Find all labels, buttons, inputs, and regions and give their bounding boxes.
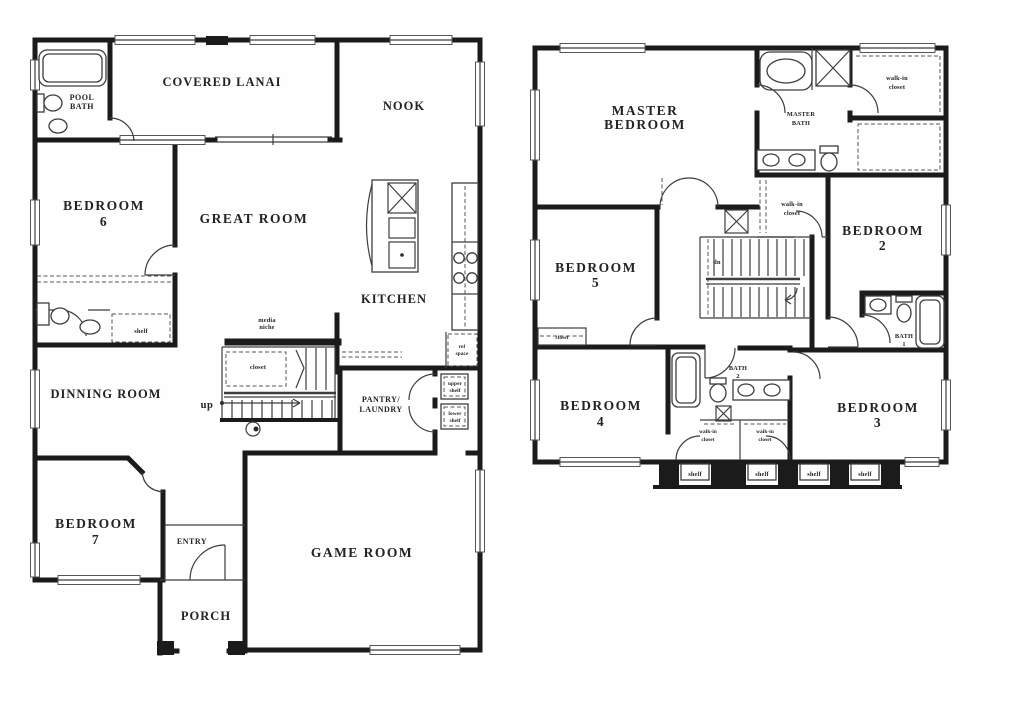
label-upper-shelf-2: shelf	[449, 388, 460, 394]
label-game-room: GAME ROOM	[311, 545, 413, 560]
label-pool-bath-2: BATH	[70, 102, 94, 111]
door-arc	[409, 374, 435, 400]
label-bedroom-4-number: 4	[597, 414, 605, 429]
sink-icon	[764, 384, 780, 396]
label-bedroom-3-number: 3	[874, 415, 882, 430]
porch-post-left	[157, 641, 174, 655]
label-master-bedroom-2: BEDROOM	[604, 117, 686, 132]
sink-icon	[763, 154, 779, 166]
label-lower-shelf: lower	[448, 411, 462, 417]
label-bath-shelf: shelf	[134, 328, 148, 335]
label-ref: ref	[459, 344, 466, 350]
label-bedroom-4: BEDROOM	[560, 398, 642, 413]
f1-walls	[35, 36, 480, 655]
label-walkin-right: walk-in	[756, 429, 774, 435]
door-arc	[793, 352, 820, 379]
label-walkin-top-2: closet	[889, 84, 906, 91]
f2-master-suite	[660, 48, 940, 207]
door-arc	[630, 318, 657, 345]
label-shelf-1: shelf	[688, 471, 702, 478]
label-walkin-right-2: closet	[758, 437, 771, 443]
label-bedroom-2: BEDROOM	[842, 223, 924, 238]
label-entry: ENTRY	[177, 537, 207, 546]
label-master-bath: MASTER	[787, 111, 815, 118]
door-arc	[862, 315, 890, 343]
door-arc	[828, 317, 858, 347]
label-bath-1: BATH	[895, 333, 913, 340]
label-stair-closet: closet	[250, 364, 267, 371]
label-bath-1-number: 1	[902, 341, 905, 348]
toilet-icon	[710, 384, 726, 402]
label-bath-2-number: 2	[736, 373, 739, 380]
f1-labels: POOL BATH COVERED LANAI NOOK BEDROOM 6 G…	[51, 75, 469, 623]
cooktop-burner	[454, 253, 464, 263]
label-bedroom-2-number: 2	[879, 238, 887, 253]
toilet-icon	[821, 153, 837, 171]
label-covered-lanai: COVERED LANAI	[163, 75, 282, 89]
label-upper-shelf: upper	[448, 381, 463, 387]
label-ref-2: space	[456, 351, 469, 357]
label-bedroom-7-number: 7	[92, 532, 100, 547]
sink-icon	[49, 119, 67, 133]
second-floor-plan: MASTER BEDROOM MASTER BATH walk-in close…	[531, 44, 951, 488]
toilet-icon	[44, 95, 62, 111]
floorplan-canvas: POOL BATH COVERED LANAI NOOK BEDROOM 6 G…	[0, 0, 1024, 720]
door-arc	[190, 545, 225, 580]
label-dining-room: DINNING ROOM	[51, 387, 162, 401]
label-dn: dn	[713, 259, 721, 266]
label-pantry: PANTRY/	[362, 395, 400, 404]
storage-closet	[858, 124, 940, 170]
label-bedroom-6: BEDROOM	[63, 198, 145, 213]
f1-stairs	[220, 347, 336, 436]
ref-space-niche	[448, 334, 477, 366]
label-shelf-3: shelf	[807, 471, 821, 478]
door-arc	[409, 406, 435, 432]
sink-icon	[789, 154, 805, 166]
label-walkin-mid-2: closet	[784, 210, 801, 217]
label-bath-2: BATH	[729, 365, 747, 372]
kitchen-island	[372, 180, 418, 272]
label-master-bath-2: BATH	[792, 120, 810, 127]
f1-entry-porch	[142, 472, 245, 580]
floorplan-image: POOL BATH COVERED LANAI NOOK BEDROOM 6 G…	[0, 0, 1024, 720]
sink-icon	[870, 299, 886, 311]
sink-icon	[80, 320, 100, 334]
label-shelf-2: shelf	[755, 471, 769, 478]
door-arc	[142, 472, 163, 492]
label-bedroom-5-number: 5	[592, 275, 600, 290]
label-lower-shelf-2: shelf	[449, 418, 460, 424]
label-great-room: GREAT ROOM	[200, 211, 309, 226]
porch-post-right	[228, 641, 245, 655]
label-walkin-left-2: closet	[701, 437, 714, 443]
lanai-post	[206, 36, 228, 45]
label-bedroom-3: BEDROOM	[837, 400, 919, 415]
label-walkin-top: walk-in	[886, 75, 908, 82]
door-arc	[676, 436, 700, 460]
double-door-arcs	[660, 178, 718, 207]
toilet-icon	[51, 308, 69, 324]
f2-labels: MASTER BEDROOM MASTER BATH walk-in close…	[555, 75, 924, 478]
f1-bedroom6-bath	[35, 245, 175, 342]
sink-icon	[738, 384, 754, 396]
label-media-niche-2: niche	[259, 324, 274, 331]
f1-kitchen-fixtures	[367, 180, 479, 368]
label-laundry: LAUNDRY	[359, 405, 402, 414]
label-pool-bath: POOL	[70, 93, 95, 102]
label-media-niche: media	[258, 317, 276, 324]
door-arc	[850, 85, 878, 113]
door-arc	[705, 348, 735, 378]
label-porch: PORCH	[181, 609, 231, 623]
label-walkin-left: walk-in	[699, 429, 717, 435]
f2-mid-closet	[757, 180, 828, 237]
f2-bedroom2-bath1	[828, 296, 944, 348]
label-up: up	[201, 400, 214, 411]
label-nook: NOOK	[383, 99, 425, 113]
up-arrow	[222, 399, 300, 407]
label-bedroom-7: BEDROOM	[55, 516, 137, 531]
toilet-icon	[897, 304, 911, 322]
label-shelf-4: shelf	[858, 471, 872, 478]
label-bedroom5-closet: closet	[555, 335, 568, 341]
door-arc	[145, 245, 175, 275]
first-floor-plan: POOL BATH COVERED LANAI NOOK BEDROOM 6 G…	[31, 36, 485, 656]
label-bedroom-5: BEDROOM	[555, 260, 637, 275]
label-master-bedroom: MASTER	[612, 103, 679, 118]
label-kitchen: KITCHEN	[361, 292, 427, 306]
label-bedroom-6-number: 6	[100, 214, 108, 229]
label-walkin-mid: walk-in	[781, 201, 803, 208]
